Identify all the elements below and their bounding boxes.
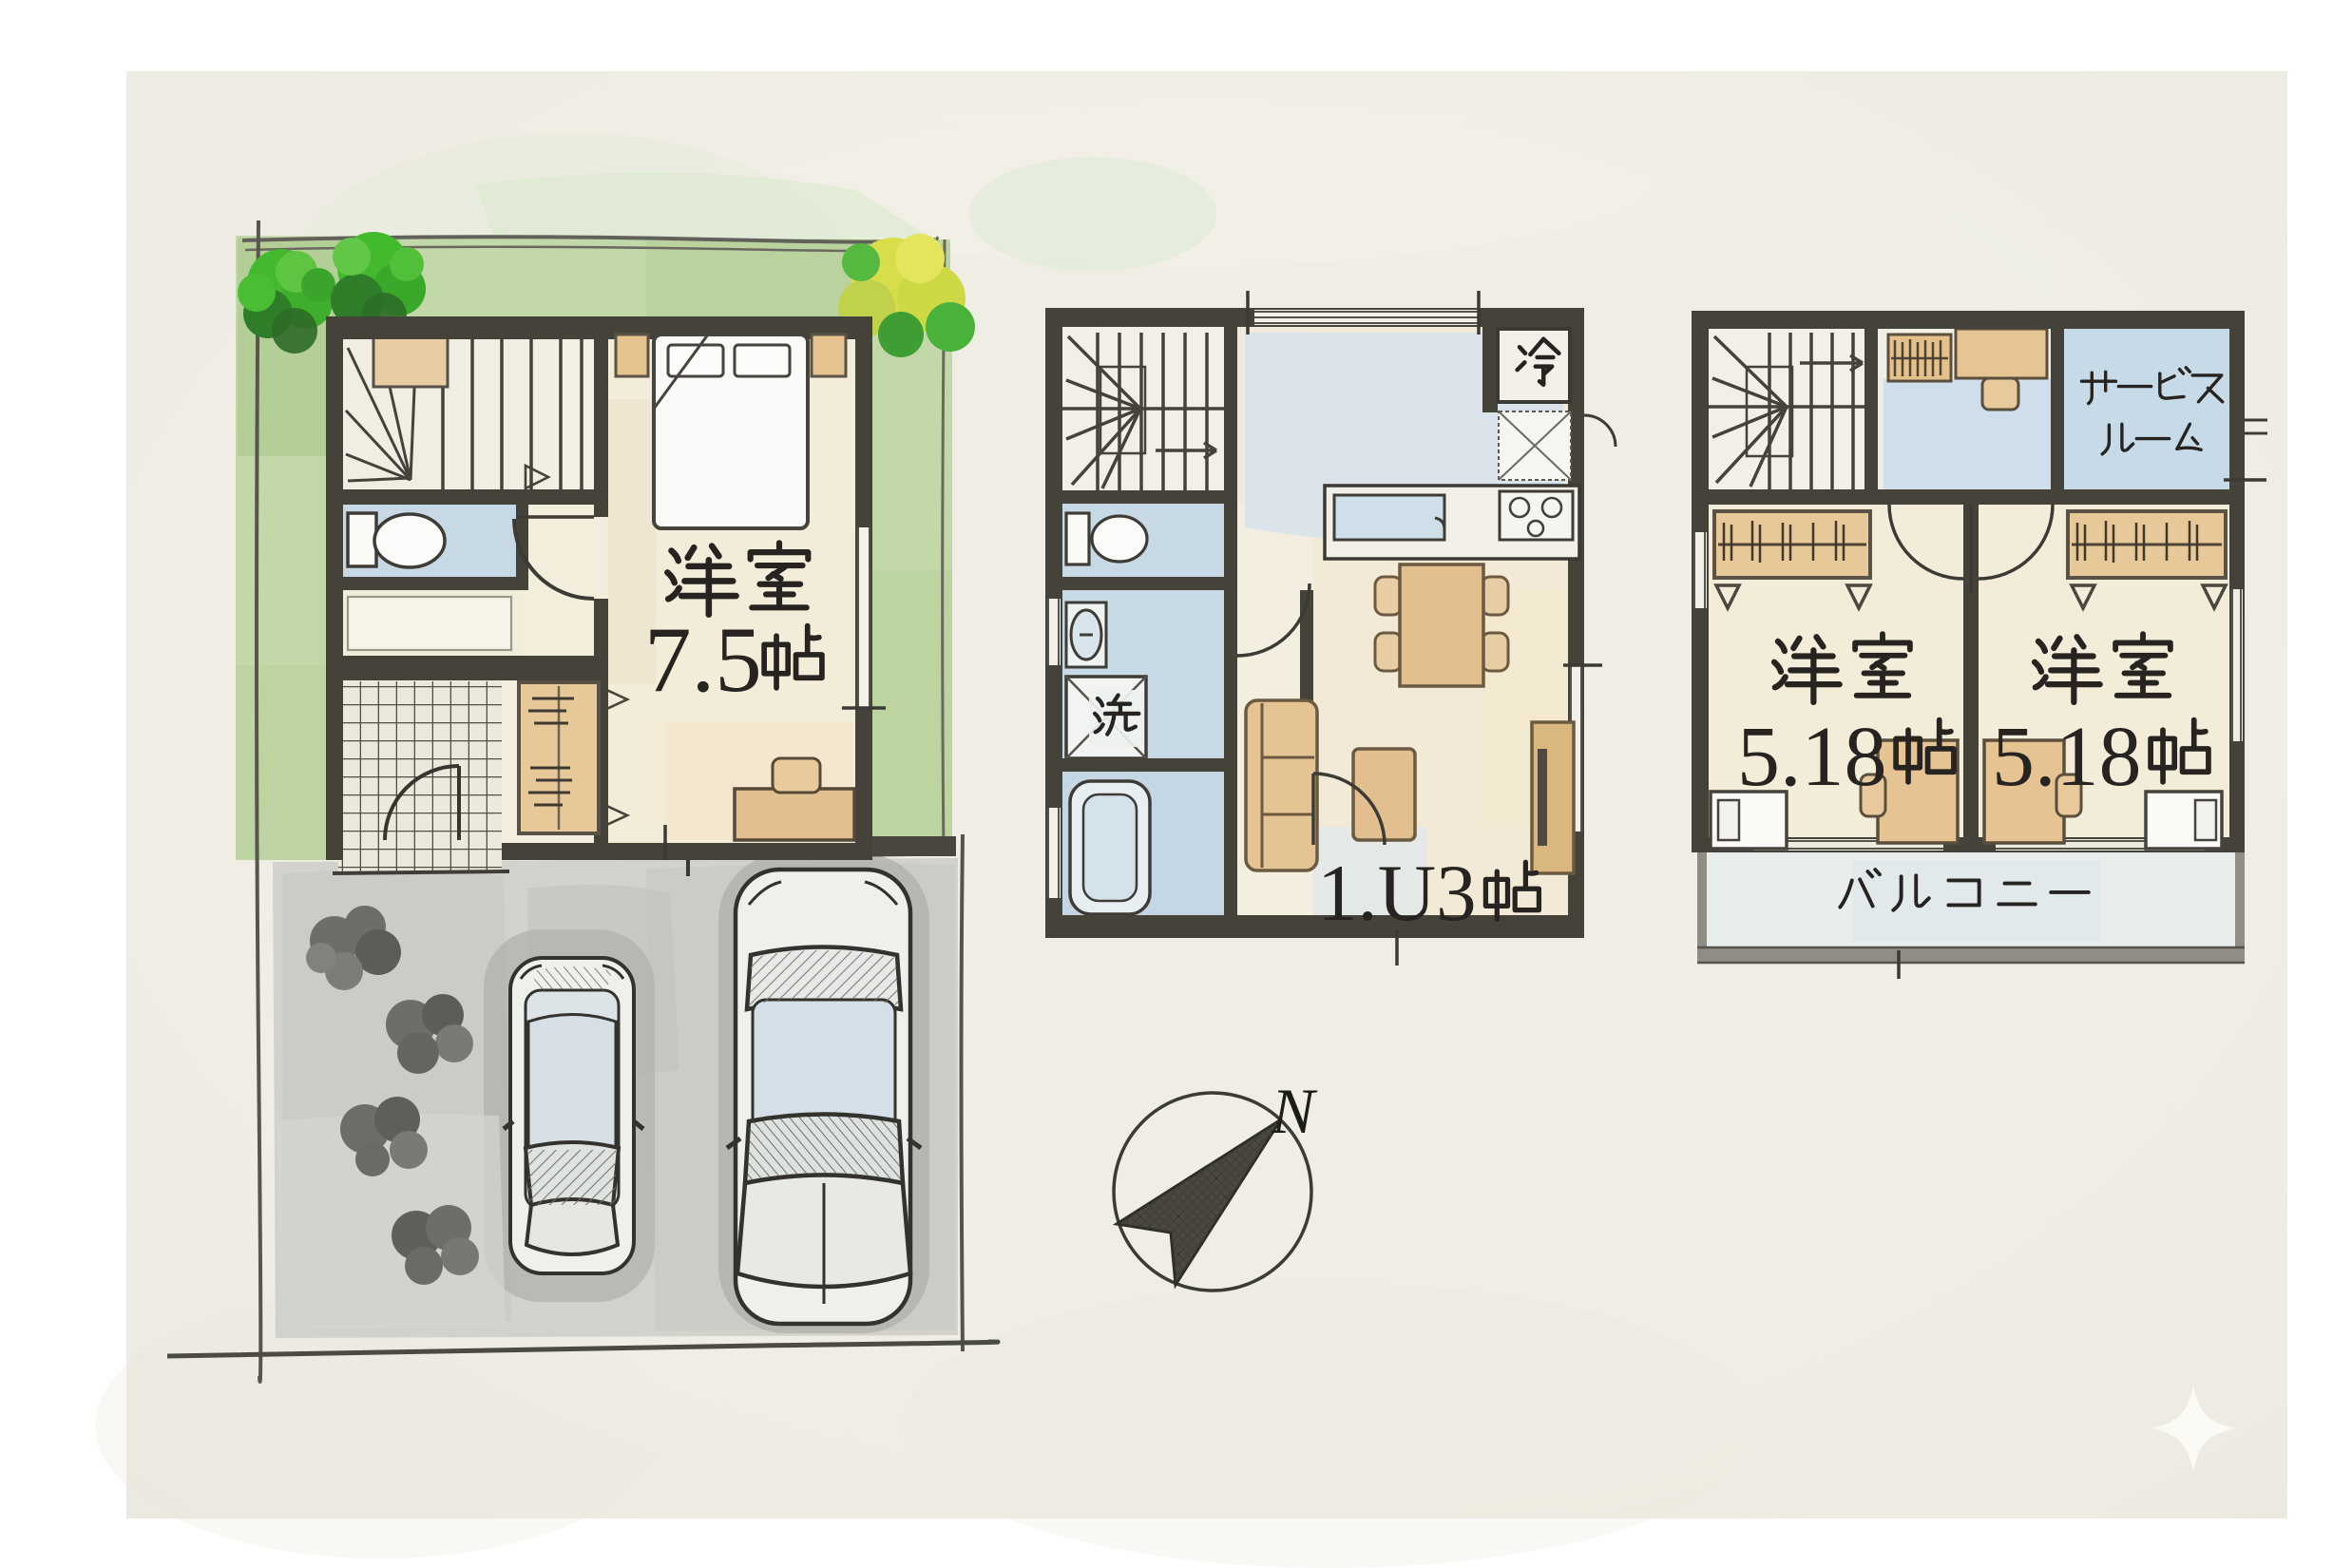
svg-text:5.18: 5.18 bbox=[1737, 710, 1887, 804]
svg-text:5.18: 5.18 bbox=[1992, 710, 2142, 804]
svg-text:1.U3: 1.U3 bbox=[1317, 849, 1477, 938]
svg-text:7.5: 7.5 bbox=[644, 608, 762, 712]
svg-text:N: N bbox=[1271, 1075, 1318, 1147]
